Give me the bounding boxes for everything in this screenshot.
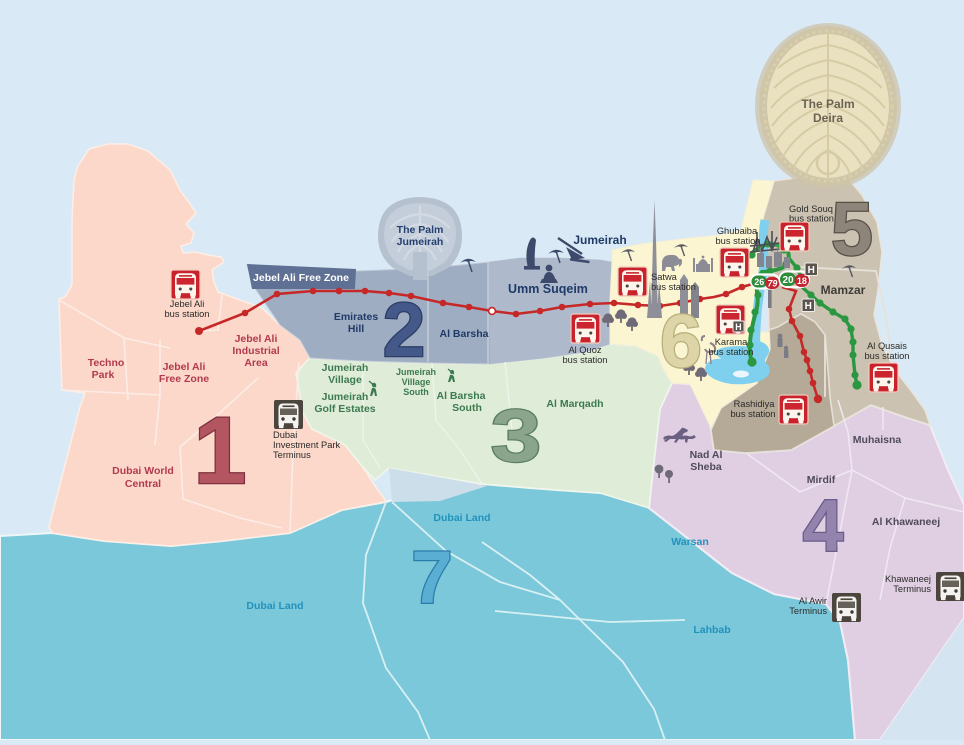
svg-text:Nad Al: Nad Al <box>690 449 723 461</box>
svg-text:Ghubaiba: Ghubaiba <box>717 226 758 236</box>
svg-text:Al Marqadh: Al Marqadh <box>546 398 603 410</box>
svg-text:Central: Central <box>125 478 161 490</box>
svg-text:Dubai Land: Dubai Land <box>433 512 490 524</box>
svg-text:Dubai Land: Dubai Land <box>246 600 303 612</box>
svg-text:bus station: bus station <box>716 236 761 246</box>
svg-text:Emirates: Emirates <box>334 311 379 323</box>
svg-text:Satwa: Satwa <box>651 272 678 282</box>
svg-text:Techno: Techno <box>88 357 125 369</box>
svg-text:Deira: Deira <box>813 111 843 125</box>
svg-text:5: 5 <box>831 187 873 271</box>
svg-text:Jebel Ali Free Zone: Jebel Ali Free Zone <box>253 272 349 284</box>
svg-text:Terminus: Terminus <box>789 606 827 616</box>
svg-text:The Palm: The Palm <box>397 224 444 236</box>
svg-text:Terminus: Terminus <box>273 450 311 460</box>
svg-text:Sheba: Sheba <box>690 461 722 473</box>
svg-text:Jumeirah: Jumeirah <box>322 362 369 374</box>
svg-text:The Palm: The Palm <box>801 97 854 111</box>
svg-text:Jumeirah: Jumeirah <box>397 236 444 248</box>
svg-text:6: 6 <box>660 299 702 383</box>
svg-text:Lahbab: Lahbab <box>693 624 730 636</box>
svg-text:Al Barsha: Al Barsha <box>439 328 488 340</box>
svg-text:18: 18 <box>797 276 807 286</box>
svg-text:Golf Estates: Golf Estates <box>314 403 375 415</box>
svg-text:Umm Suqeim: Umm Suqeim <box>508 282 588 296</box>
svg-text:Jebel Ali: Jebel Ali <box>170 299 205 309</box>
svg-text:Al Awir: Al Awir <box>799 596 827 606</box>
svg-text:Mirdif: Mirdif <box>807 474 836 486</box>
svg-text:Jumeirah: Jumeirah <box>396 367 436 377</box>
svg-text:Al Barsha: Al Barsha <box>436 390 485 402</box>
svg-text:1: 1 <box>194 398 247 504</box>
svg-text:Industrial: Industrial <box>232 345 279 357</box>
svg-text:Warsan: Warsan <box>671 536 709 548</box>
svg-text:Rashidiya: Rashidiya <box>734 399 776 409</box>
svg-text:South: South <box>403 387 429 397</box>
svg-text:bus station: bus station <box>789 214 834 224</box>
svg-text:Al Qusais: Al Qusais <box>867 341 907 351</box>
svg-text:Jumeirah: Jumeirah <box>573 233 626 247</box>
svg-text:Village: Village <box>328 374 362 386</box>
svg-text:bus station: bus station <box>865 351 910 361</box>
svg-text:Dubai: Dubai <box>273 430 297 440</box>
svg-text:Village: Village <box>402 377 431 387</box>
svg-text:Area: Area <box>244 357 268 369</box>
svg-text:bus station: bus station <box>651 282 696 292</box>
svg-text:bus station: bus station <box>563 355 608 365</box>
svg-text:Al Khawaneej: Al Khawaneej <box>872 516 940 528</box>
svg-text:20: 20 <box>782 275 794 286</box>
svg-text:Terminus: Terminus <box>893 584 931 594</box>
svg-text:Park: Park <box>92 369 115 381</box>
svg-text:26: 26 <box>754 277 764 287</box>
svg-text:Jumeirah: Jumeirah <box>322 391 369 403</box>
svg-text:79: 79 <box>768 279 778 289</box>
svg-text:Dubai World: Dubai World <box>112 465 174 477</box>
svg-text:South: South <box>452 402 482 414</box>
svg-text:Investment Park: Investment Park <box>273 440 341 450</box>
svg-text:2: 2 <box>383 288 425 373</box>
svg-text:bus station: bus station <box>731 409 776 419</box>
svg-text:Mamzar: Mamzar <box>821 283 866 297</box>
svg-text:Jebel Ali: Jebel Ali <box>235 333 278 345</box>
svg-text:bus station: bus station <box>165 309 210 319</box>
svg-text:7: 7 <box>411 536 452 619</box>
svg-text:Karama: Karama <box>715 337 748 347</box>
svg-text:Hill: Hill <box>348 323 364 335</box>
svg-text:Khawaneej: Khawaneej <box>885 574 931 584</box>
svg-text:Al Quoz: Al Quoz <box>568 345 601 355</box>
svg-text:Gold Souq: Gold Souq <box>789 204 833 214</box>
svg-text:3: 3 <box>491 395 541 477</box>
svg-text:Muhaisna: Muhaisna <box>853 434 902 446</box>
svg-text:Free Zone: Free Zone <box>159 373 209 385</box>
svg-text:Jebel Ali: Jebel Ali <box>163 361 206 373</box>
svg-text:bus station: bus station <box>709 347 754 357</box>
svg-text:4: 4 <box>803 486 844 567</box>
